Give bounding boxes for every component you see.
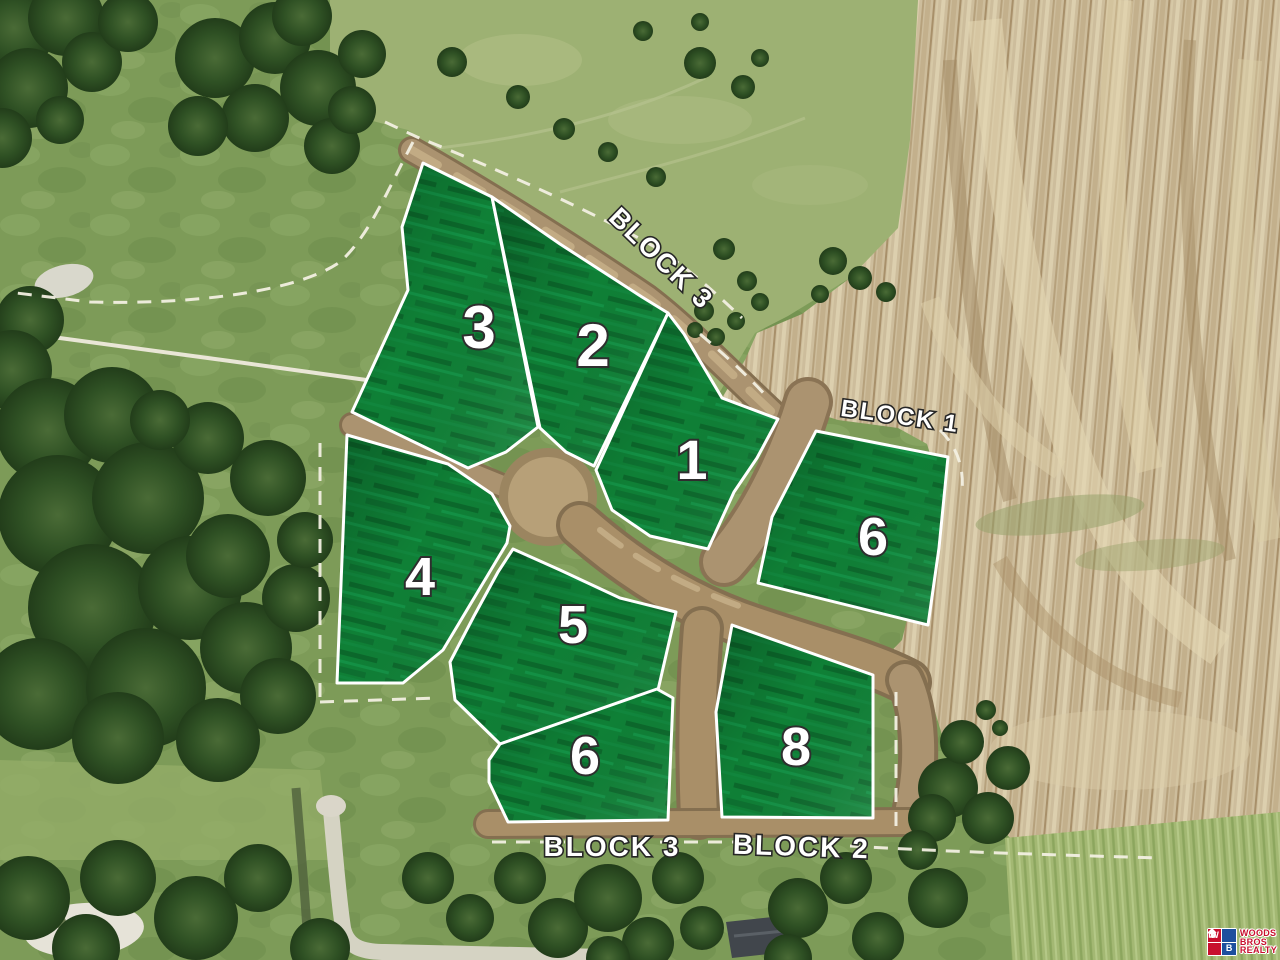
woods-bros-realty-logo: W B WOODS BROS REALTY xyxy=(1207,928,1277,956)
logo-grid: W B xyxy=(1207,928,1237,956)
aerial-photo: 3 2 1 6 4 5 6 8 BLOCK 3 BLOCK 1 BLOCK 3 … xyxy=(0,0,1280,960)
logo-wordmark: WOODS BROS REALTY xyxy=(1240,929,1277,955)
tree-icon xyxy=(1208,943,1222,956)
aerial-plat-map: 3 2 1 6 4 5 6 8 BLOCK 3 BLOCK 1 BLOCK 3 … xyxy=(0,0,1280,960)
lot-number-3: 3 xyxy=(462,294,495,361)
block-label-bottom-right: BLOCK 2 xyxy=(732,829,870,865)
field-bottom-left xyxy=(0,760,330,860)
logo-word-realty: REALTY xyxy=(1240,946,1277,955)
lot-number-8: 8 xyxy=(781,717,811,777)
lot-number-1: 1 xyxy=(676,428,707,491)
lot-number-6-east: 6 xyxy=(858,507,888,567)
block-label-bottom-left: BLOCK 3 xyxy=(544,831,681,862)
lot-number-6-south: 6 xyxy=(570,726,600,786)
house-icon xyxy=(1222,929,1236,942)
lot-number-4: 4 xyxy=(405,547,435,607)
lot-number-5: 5 xyxy=(558,595,588,655)
lot-number-2: 2 xyxy=(576,312,609,379)
logo-letter-b: B xyxy=(1222,943,1236,956)
